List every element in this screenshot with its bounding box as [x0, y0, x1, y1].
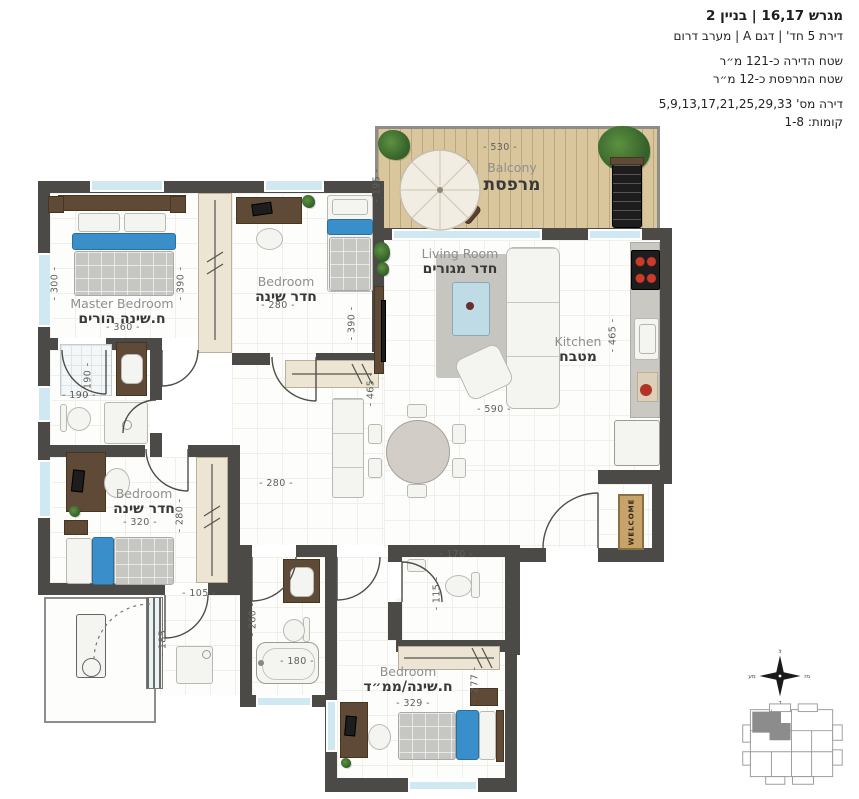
wall [505, 545, 520, 655]
room-name-he: מטבח [536, 349, 620, 366]
wall [325, 545, 337, 790]
bed-blanket [456, 710, 479, 760]
plant [341, 758, 351, 768]
plant [378, 130, 410, 160]
bbq-shelf [610, 157, 644, 165]
building-key-plan [736, 702, 848, 790]
dimension-label: - 590 - [448, 404, 540, 415]
apartment-area: שטח הדירה כ-121 מ״ר [659, 52, 843, 70]
wall [38, 338, 58, 350]
wall [505, 655, 517, 792]
window [256, 696, 312, 707]
welcome-mat-text: WELCOME [627, 499, 635, 546]
nightstand [170, 196, 186, 213]
room-label-bedroom3: Bedroom חדר שינה [92, 486, 196, 518]
master-bed-headboard [58, 195, 186, 211]
plant [69, 506, 80, 517]
wall [232, 353, 270, 365]
bed-headboard [496, 710, 504, 762]
compass-east-label: מז [804, 674, 810, 680]
toilet-tank [60, 404, 67, 432]
wall [228, 445, 240, 595]
plan-title: מגרש 16,17 | בניין 2 [659, 8, 843, 24]
sink [290, 567, 314, 597]
hall-bench [332, 398, 364, 498]
dimension-label: - 195 - [372, 158, 383, 214]
dimension-label: - 180 - [266, 656, 328, 667]
pillow [78, 213, 120, 232]
master-bed-blanket [72, 233, 176, 250]
toilet-tank [471, 572, 480, 598]
plan-header: מגרש 16,17 | בניין 2 דירת 5 חד' | דגם A … [659, 8, 843, 131]
room-name-he: ח.שינה הורים [52, 311, 192, 328]
pillow [124, 213, 166, 232]
room-label-balcony: Balcony מרפסת [452, 160, 572, 195]
plan-subtitle: דירת 5 חד' | דגם A | מערב דרום [659, 27, 843, 45]
floors-range: קומות: 1-8 [659, 113, 843, 131]
room-name-he: מרפסת [452, 175, 572, 195]
welcome-mat: WELCOME [618, 494, 644, 550]
room-name-en: Bedroom [228, 274, 344, 289]
dining-chair [407, 484, 427, 498]
pillow [479, 711, 496, 760]
dining-chair [407, 404, 427, 418]
dimension-label: - 465 - [366, 362, 377, 418]
wall [388, 545, 402, 562]
floor-plan-page: מגרש 16,17 | בניין 2 דירת 5 חד' | דגם A … [0, 0, 859, 799]
wall [228, 545, 252, 557]
wall [516, 548, 546, 562]
dimension-label: - 260 - [248, 592, 259, 648]
window [38, 460, 52, 518]
wall [598, 548, 664, 562]
wall [388, 602, 402, 640]
tv [381, 300, 386, 362]
room-name-en: Kitchen [536, 334, 620, 349]
pillow [66, 538, 92, 584]
compass-west-label: מע [748, 674, 756, 680]
wall [660, 228, 672, 484]
wall [150, 433, 162, 457]
apartment-numbers: דירה מס' 5,9,13,17,21,25,29,33 [659, 95, 843, 113]
sofa [506, 247, 560, 409]
room-name-he: ח.שינה/ממ״ד [350, 679, 466, 696]
balcony-area: שטח המרפסת כ-12 מ״ר [659, 70, 843, 88]
window [326, 700, 337, 752]
compass-icon: צ מז ד מע [752, 646, 808, 706]
dining-chair [368, 424, 382, 444]
faucet [258, 660, 264, 666]
laptop [344, 716, 357, 737]
fridge [614, 420, 660, 466]
window [264, 179, 324, 192]
sink-bowl [639, 324, 656, 354]
closet [196, 457, 228, 583]
dining-chair [452, 424, 466, 444]
room-label-kitchen: Kitchen מטבח [536, 334, 620, 366]
room-name-en: Living Room [412, 246, 508, 261]
compass-north-label: צ [778, 649, 781, 655]
toilet [67, 407, 91, 431]
dimension-label: - 390 - [347, 296, 358, 352]
room-name-he: חדר שינה [92, 501, 196, 518]
plant [377, 262, 389, 276]
small-sink [407, 559, 426, 572]
room-name-en: Balcony [452, 160, 572, 175]
dimension-label: - 190 - [50, 390, 108, 401]
dimension-label: - 170 - [426, 549, 486, 560]
room-label-bedroom2: Bedroom חדר שינה [228, 274, 344, 306]
room-name-en: Master Bedroom [52, 296, 192, 311]
window [90, 179, 164, 192]
washer-knob [202, 650, 211, 659]
room-name-en: Bedroom [350, 664, 466, 679]
dining-chair [368, 458, 382, 478]
dimension-label: - 530 - [458, 142, 542, 153]
toilet [445, 575, 472, 597]
window [408, 780, 478, 791]
dimension-label: - 185 - [158, 612, 169, 668]
dimension-label: - 329 - [380, 698, 446, 709]
food [640, 384, 652, 396]
bowl [466, 302, 474, 310]
master-bed-quilt [74, 251, 174, 296]
bbq-grill [612, 164, 642, 228]
wall [150, 338, 162, 400]
room-label-mamad: Bedroom ח.שינה/ממ״ד [350, 664, 466, 696]
bed-blanket [92, 537, 114, 585]
toilet [283, 619, 305, 642]
room-name-en: Bedroom [92, 486, 196, 501]
room-name-he: חדר שינה [228, 289, 344, 306]
plant [374, 242, 390, 262]
dining-table [386, 420, 450, 484]
dimension-label: - 115 - [432, 566, 443, 622]
balcony-sliding-door [392, 229, 542, 240]
wall [240, 695, 256, 707]
dimension-label: - 320 - [106, 517, 174, 528]
room-name-he: חדר מגורים [412, 261, 508, 278]
drain [122, 420, 132, 430]
window [588, 229, 642, 240]
wall [325, 778, 408, 792]
bed-blanket [327, 219, 373, 235]
closet [198, 193, 232, 353]
room-label-master: Master Bedroom ח.שינה הורים [52, 296, 192, 328]
nightstand [48, 196, 64, 213]
dimension-label: - 280 - [238, 478, 314, 489]
sink [121, 354, 143, 384]
room-label-living: Living Room חדר מגורים [412, 246, 508, 278]
nightstand [64, 520, 88, 535]
bed-quilt [114, 537, 174, 585]
lobby-floor [337, 557, 388, 640]
bed-quilt [398, 712, 456, 760]
dimension-label: - 277 - [470, 656, 481, 712]
laptop [71, 469, 85, 492]
heater-valve [82, 658, 101, 677]
pillow [332, 199, 368, 215]
dining-chair [452, 458, 466, 478]
dimension-label: - 105 - [170, 588, 228, 599]
desk-chair [256, 228, 283, 250]
cooktop [631, 250, 660, 290]
plant [302, 195, 315, 208]
desk-chair [368, 724, 391, 750]
wall [598, 470, 672, 484]
